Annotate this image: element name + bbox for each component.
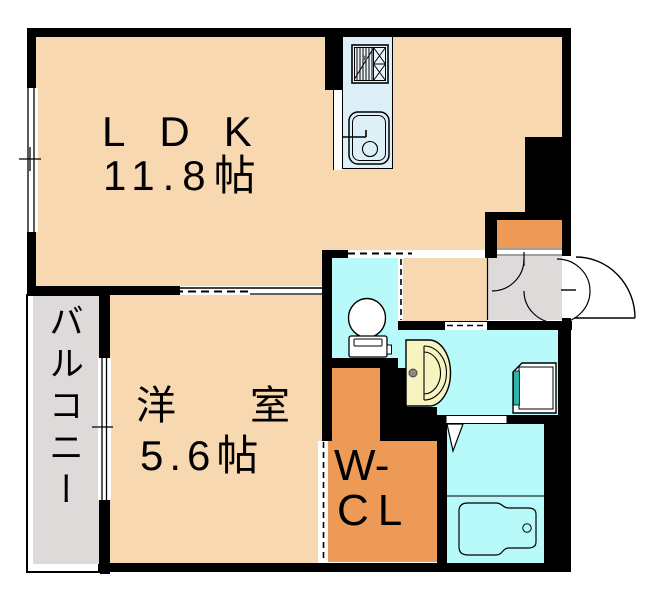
window-ldk-left [24,88,38,232]
room-ldk-area-bottom [36,250,322,287]
wall-above-cabinet [485,212,562,220]
room-western-area [110,295,322,564]
hallway-area [403,258,487,321]
wall-washroom-bottom [398,415,562,424]
wall-toilet-bottom [322,358,398,368]
window-western-left [98,358,111,500]
wall-wcl-right-mid [407,407,437,441]
shoe-cabinet-track [497,248,562,256]
western-wcl-gap [318,441,328,563]
washroom-area [398,330,558,415]
wall-bathroom-right [544,415,571,563]
wall-left-of-cabinet [485,220,497,258]
entrance-door [561,257,635,318]
floor-plan: LDK 11.8帖 洋室 5.6帖 W- CL バルコニー [0,0,650,596]
label-western-name: 洋室 [136,386,364,426]
kitchen-counter [342,37,393,169]
wall-bottom [100,563,571,572]
kitchen-wall-stub [325,37,342,90]
label-ldk-size: 11.8帖 [103,155,264,197]
wall-toilet-top-stub [330,250,348,258]
wall-wcl-right-upper [380,368,407,441]
washroom-door-gap [445,322,487,330]
label-ldk-name: LDK [102,111,286,153]
label-wcl-line2: CL [337,489,411,533]
shoe-cabinet [497,220,562,248]
entrance-genkan-area [487,256,562,320]
wall-right-upper [562,28,571,256]
label-wcl-line1: W- [334,444,389,488]
wall-washroom-right [558,330,571,415]
toilet-room-area [330,258,398,358]
bathroom-area [447,424,544,563]
label-balcony: バルコニー [46,303,81,565]
wall-top [27,28,571,37]
label-western-size: 5.6帖 [140,435,264,477]
wall-bath-left [437,415,447,563]
wall-indent [525,137,562,212]
